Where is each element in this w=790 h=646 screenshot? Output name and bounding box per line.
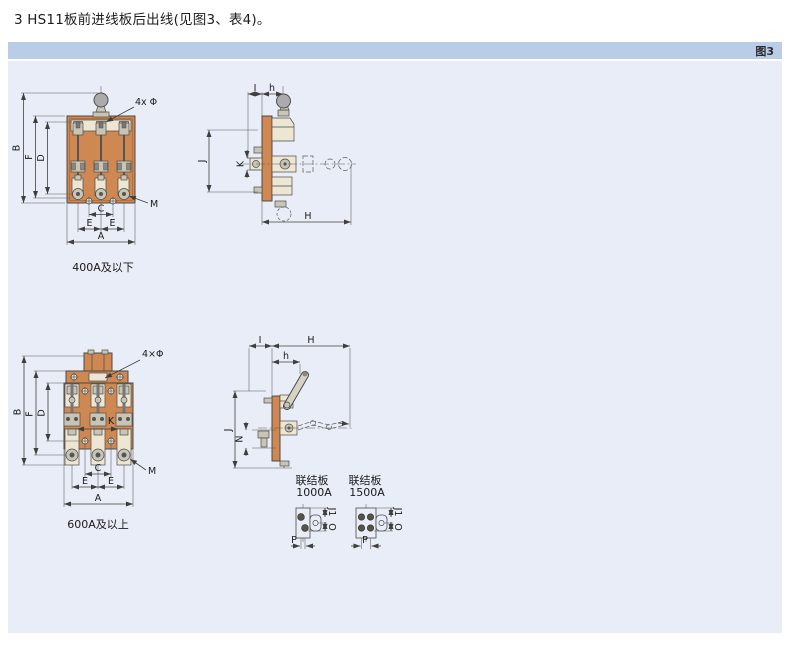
dim-p-1500: P bbox=[351, 535, 381, 549]
plate1000-caption-line2: 1000A bbox=[296, 486, 332, 499]
dim-label-e2: E bbox=[108, 476, 114, 487]
lever-handle bbox=[287, 375, 305, 406]
dim-label-m: M bbox=[150, 199, 158, 210]
dim-label-a: A bbox=[98, 231, 105, 242]
plate-1500a: 联结板 1500A J1 O bbox=[349, 473, 404, 549]
caption-400a: 400A及以下 bbox=[72, 261, 134, 274]
plate-1000a: 联结板 1000A J1 O bbox=[291, 473, 337, 549]
figure-tag: 图3 bbox=[755, 43, 774, 59]
dim-label-b: B bbox=[12, 145, 23, 152]
figure-header-bar: 图3 bbox=[8, 42, 782, 59]
dim-n-600: N bbox=[235, 422, 247, 456]
figure3-drawing: B F D 4x Φ bbox=[8, 61, 782, 633]
dim-label-c: C bbox=[98, 204, 105, 215]
diagram-side-400a: I h bbox=[197, 83, 356, 225]
dim-i-400: I bbox=[248, 83, 262, 94]
dim-label-j: J bbox=[197, 160, 208, 164]
section-title: 3 HS11板前进线板后出线(见图3、表4)。 bbox=[14, 8, 271, 28]
side-board-400 bbox=[262, 116, 272, 201]
figure-panel: B F D 4x Φ bbox=[8, 61, 782, 633]
dim-label-holes: 4×Φ bbox=[142, 349, 163, 360]
plate1500-caption-line1: 联结板 bbox=[349, 473, 382, 487]
connection-plate-1500 bbox=[356, 508, 376, 538]
dim-h-small-600: h bbox=[272, 351, 300, 362]
plate1500-caption-line2: 1500A bbox=[349, 486, 385, 499]
dim-label-a: A bbox=[95, 493, 102, 504]
dim-holes-600: 4×Φ bbox=[105, 349, 163, 378]
dim-label-e2: E bbox=[109, 218, 115, 229]
diagram-front-600a: K B F D bbox=[13, 349, 164, 531]
diagram-side-600a: I H h bbox=[223, 335, 352, 468]
dim-label-h: h bbox=[269, 83, 275, 94]
plate1000-caption-line1: 联结板 bbox=[296, 473, 329, 487]
dim-label-n: N bbox=[235, 435, 246, 442]
dim-h-small-400: h bbox=[262, 83, 283, 94]
diagram-front-400a: B F D 4x Φ bbox=[12, 86, 159, 274]
dim-label-m: M bbox=[148, 466, 156, 477]
side-board-600 bbox=[272, 396, 280, 461]
dim-label-o: O bbox=[392, 523, 403, 530]
dim-label-H: H bbox=[307, 335, 314, 346]
dim-label-p: P bbox=[291, 535, 297, 546]
dim-label-d: D bbox=[37, 409, 48, 416]
dim-i-600: I bbox=[249, 335, 272, 346]
dim-label-h: h bbox=[283, 351, 289, 362]
dim-m-600: M bbox=[130, 459, 156, 477]
dim-label-f: F bbox=[25, 411, 36, 416]
dim-label-j1: J1 bbox=[392, 507, 403, 517]
dim-label-b: B bbox=[13, 409, 24, 416]
connection-plate-1000 bbox=[296, 508, 310, 538]
dim-j-400: J bbox=[197, 130, 258, 192]
dim-label-i: I bbox=[254, 83, 257, 94]
dim-label-holes: 4x Φ bbox=[135, 97, 157, 108]
dim-label-p: P bbox=[362, 535, 368, 546]
caption-600a: 600A及以上 bbox=[67, 518, 129, 531]
catalog-page: 3 HS11板前进线板后出线(见图3、表4)。 图3 bbox=[0, 0, 790, 646]
dim-label-H: H bbox=[304, 211, 311, 222]
dim-label-e1: E bbox=[82, 476, 88, 487]
dim-label-o: O bbox=[326, 523, 337, 530]
handle-ball-side-400 bbox=[277, 94, 291, 108]
dim-label-i: I bbox=[259, 335, 262, 346]
dim-label-e1: E bbox=[86, 218, 92, 229]
dim-label-c: C bbox=[95, 463, 102, 474]
dim-label-k: K bbox=[108, 416, 115, 427]
dim-label-d: D bbox=[36, 154, 47, 161]
handle-ball-400 bbox=[94, 93, 108, 107]
dim-label-j1: J1 bbox=[326, 507, 337, 517]
dim-label-j: J bbox=[223, 429, 234, 433]
dim-H-600: H bbox=[272, 335, 350, 346]
dim-label-k: K bbox=[236, 160, 247, 167]
dim-label-f: F bbox=[24, 154, 35, 159]
